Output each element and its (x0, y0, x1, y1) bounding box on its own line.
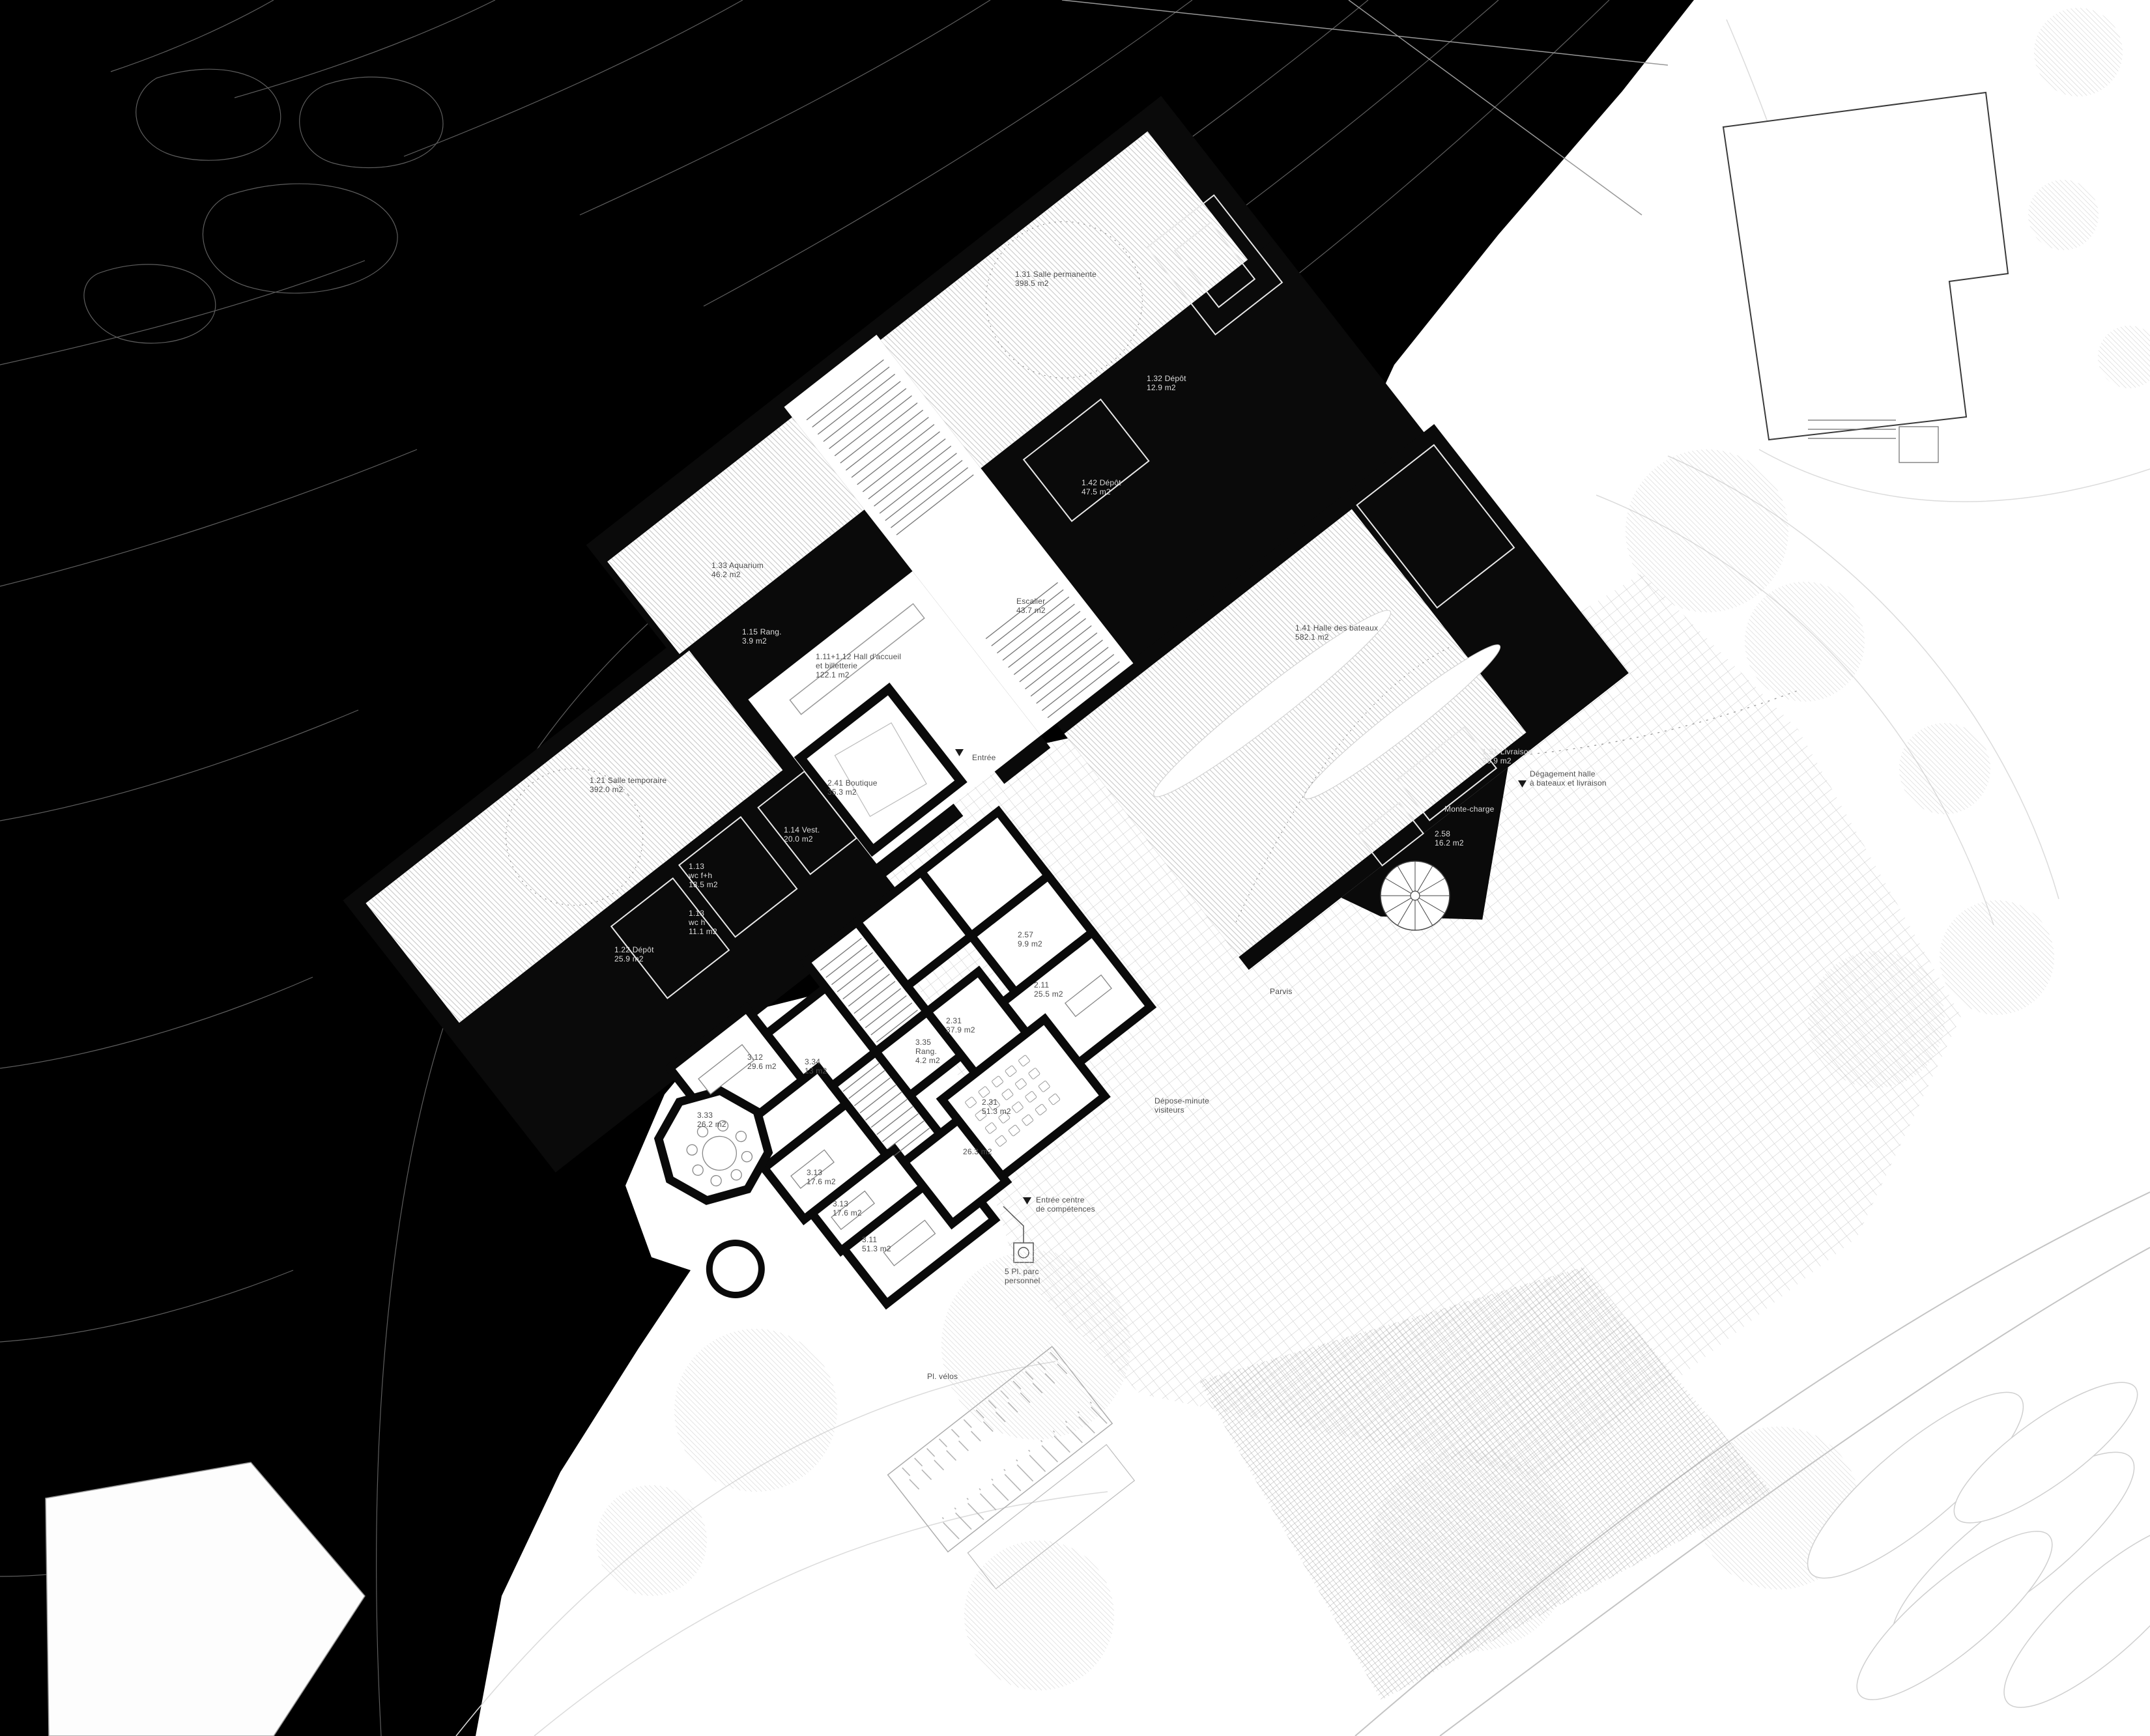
spiral-stair-icon (1381, 861, 1450, 930)
label-degagement-halle: Dégagement halleà bateaux et livraison (1530, 769, 1607, 788)
tree-icon (1745, 582, 1865, 702)
label-pl-velos: Pl. vélos (927, 1372, 958, 1381)
chateau-turret (699, 1232, 772, 1305)
site-plan-canvas: 1.31 Salle permanente398.5 m21.32 Dépôt1… (0, 0, 2150, 1736)
hedge-ellipses (1786, 1361, 2150, 1732)
tree-icon (2098, 326, 2150, 388)
label-room-263: 26.3 m2 (963, 1147, 992, 1156)
label-escalier: Escalier43.7 m2 (1016, 597, 1046, 615)
tree-icon (1808, 951, 1945, 1088)
tree-icon (1371, 1449, 1573, 1651)
tree-icon (674, 1329, 837, 1492)
label-entree: Entrée (972, 753, 996, 762)
tree-icon (964, 1541, 1114, 1690)
tree-icon (2034, 8, 2123, 96)
ramp-icon (1808, 414, 1896, 446)
label-monte-charge: Monte-charge (1444, 804, 1495, 814)
site-plan-drawing: 1.31 Salle permanente398.5 m21.32 Dépôt1… (0, 0, 2150, 1736)
label-parc-personnel: 5 Pl. parcpersonnel (1005, 1267, 1040, 1285)
tree-icon (1626, 449, 1788, 612)
neighbour-building (1723, 92, 2008, 462)
tree-icon (2028, 180, 2099, 250)
tree-icon (596, 1485, 707, 1596)
label-parvis: Parvis (1270, 987, 1293, 996)
tree-icon (1899, 723, 1990, 814)
tree-icon (1940, 900, 2054, 1015)
